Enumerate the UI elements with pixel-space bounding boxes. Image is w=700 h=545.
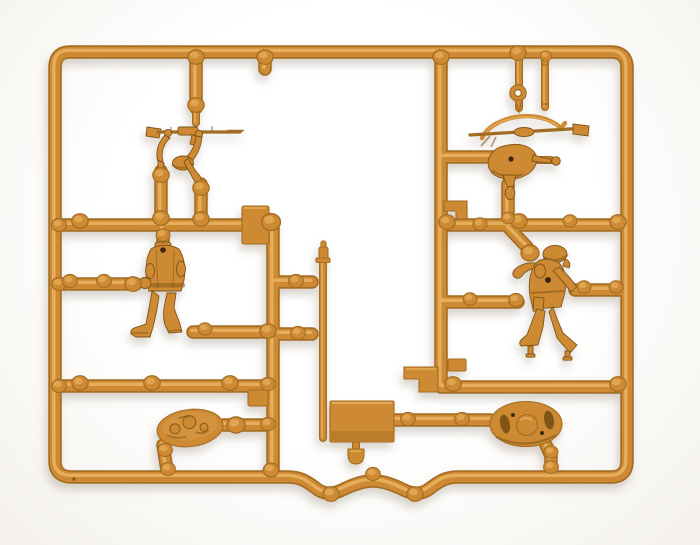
connector-nub <box>188 98 204 113</box>
connector-nub <box>289 274 304 287</box>
eyelet-pin <box>510 85 526 112</box>
connector-nub <box>198 323 212 335</box>
connector-nub <box>291 326 306 339</box>
connector-nub <box>188 50 204 65</box>
connector-nub <box>260 324 276 339</box>
connector-nub <box>161 462 176 475</box>
connector-nub <box>97 274 112 287</box>
connector-nub <box>433 50 449 65</box>
moulding-plate <box>330 401 394 442</box>
face <box>563 259 570 268</box>
connector-nub <box>72 376 88 391</box>
gunner-body <box>488 144 537 179</box>
connector-nub <box>153 168 169 183</box>
connector-nub <box>609 281 623 293</box>
sprue <box>52 46 627 502</box>
tab-left-lower <box>248 390 268 406</box>
tab-right-small-step <box>448 359 466 371</box>
connector-nub <box>263 463 279 477</box>
connector-nub <box>455 412 470 425</box>
connector-nub <box>72 214 88 229</box>
connector-nub <box>63 274 78 287</box>
connector-nub <box>261 417 276 430</box>
connector-nub <box>125 277 141 292</box>
connector-nub <box>521 245 539 261</box>
connector-nub <box>193 212 209 227</box>
pack <box>535 264 546 278</box>
connector-nub <box>323 487 339 502</box>
arm-socket-hole <box>545 277 551 283</box>
connector-nub <box>144 376 160 391</box>
connector-nub <box>227 417 245 433</box>
connector-nub <box>52 379 67 392</box>
dome-knob <box>348 449 364 464</box>
right-leg-boot <box>164 293 182 333</box>
left-pouch <box>146 264 155 279</box>
mg-stock <box>573 124 589 136</box>
connector-nub <box>540 51 551 61</box>
connector-nub <box>610 377 626 392</box>
figure-base-underside <box>490 402 562 447</box>
connector-nub <box>463 293 477 305</box>
left-leg <box>520 309 545 346</box>
connector-nub <box>401 412 416 425</box>
connector-nub <box>473 218 487 230</box>
head-socket-hole <box>160 247 166 253</box>
connector-nub <box>501 212 514 224</box>
connector-nub <box>156 229 170 241</box>
photo-of-plastic-sprue: Top-down photograph of a tan injection-m… <box>0 0 700 545</box>
sprue-illustration <box>0 0 700 545</box>
connector-nub <box>193 181 209 196</box>
connector-nub <box>510 46 526 61</box>
connector-nub <box>153 211 169 226</box>
connector-nub <box>261 377 276 390</box>
connector-nub <box>407 487 423 502</box>
right-pouch <box>177 261 186 277</box>
connector-nub <box>262 214 281 231</box>
connector-nub <box>577 281 591 293</box>
connector-nub <box>563 215 577 227</box>
connector-nub <box>257 50 273 65</box>
connector-nub <box>222 376 238 391</box>
connector-nub <box>366 467 381 480</box>
mg-receiver <box>514 128 534 137</box>
connector-nub <box>544 446 558 458</box>
connector-nub <box>158 443 173 456</box>
connector-nub <box>439 215 455 230</box>
connector-nub <box>544 460 559 473</box>
arm-ball-stub <box>552 157 561 166</box>
pole-tip <box>316 241 330 263</box>
tab-right-staircase <box>404 367 438 392</box>
mould-pin-hole <box>72 477 75 480</box>
connector-nub <box>445 377 461 392</box>
connector-nub <box>509 293 524 306</box>
teardrop-gate <box>505 187 515 200</box>
right-leg <box>549 307 577 353</box>
connector-nub <box>610 215 626 230</box>
left-leg-boot <box>131 291 159 337</box>
connector-nub <box>52 218 67 231</box>
